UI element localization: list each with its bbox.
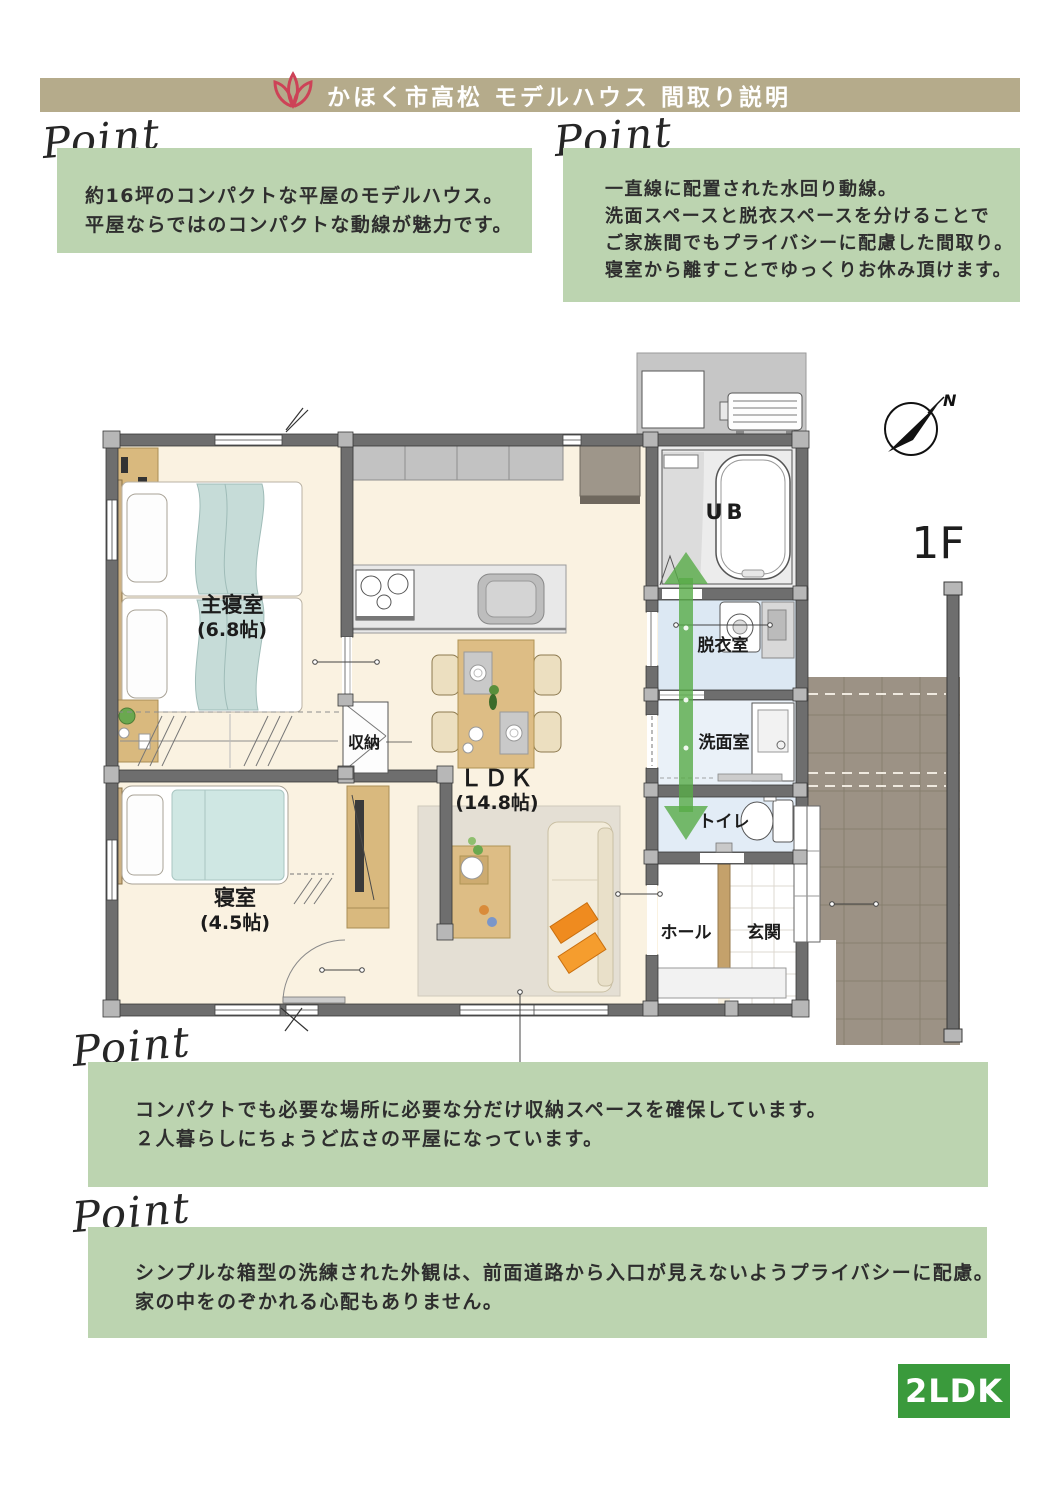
room-label-entrance: 玄関: [747, 922, 781, 943]
room-label-storage: 収納: [348, 733, 380, 752]
sink-icon: [478, 574, 544, 624]
compass-north-label: N: [943, 391, 957, 410]
entrance-approach: [806, 940, 836, 1045]
badge-2ldk: 2LDK: [898, 1364, 1010, 1418]
point-line: 平屋ならではのコンパクトな動線が魅力です。: [85, 211, 532, 240]
point-box-2: 一直線に配置された水回り動線。 洗面スペースと脱衣スペースを分けることで ご家族…: [563, 148, 1020, 302]
vanity-icon: [752, 703, 794, 781]
point-line: ２人暮らしにちょうど広さの平屋になっています。: [135, 1125, 988, 1154]
porch-tiles: [806, 677, 960, 1045]
single-bed: [112, 786, 288, 884]
room-label-ldk: ＬＤＫ: [460, 766, 535, 792]
point-box-3: コンパクトでも必要な場所に必要な分だけ収納スペースを確保しています。 ２人暮らし…: [88, 1062, 988, 1187]
room-label-dressing: 脱衣室: [698, 635, 749, 656]
room-label-hall: ホール: [661, 923, 712, 943]
room-label-washroom: 洗面室: [699, 732, 750, 753]
point-box-4: シンプルな箱型の洗練された外観は、前面道路から入口が見えないようプライバシーに配…: [88, 1227, 987, 1338]
point-line: コンパクトでも必要な場所に必要な分だけ収納スペースを確保しています。: [135, 1096, 988, 1125]
tv-board: [347, 786, 389, 928]
point-line: 約16坪のコンパクトな平屋のモデルハウス。: [85, 182, 532, 211]
fence-wall: [944, 582, 962, 1042]
hall-entrance-divider: [718, 864, 730, 968]
outdoor-unit-icon: [720, 393, 802, 434]
shoe-cabinet: [656, 968, 786, 998]
compass-icon: N: [885, 391, 957, 455]
sofa: [548, 822, 613, 992]
refrigerator: [580, 440, 640, 504]
point-line: ご家族間でもプライバシーに配慮した間取り。: [605, 230, 1020, 257]
point-line: 家の中をのぞかれる心配もありません。: [135, 1288, 987, 1317]
room-size-ldk: (14.8帖): [455, 791, 538, 814]
floor-level-label: 1F: [911, 518, 964, 569]
point-line: シンプルな箱型の洗練された外観は、前面道路から入口が見えないようプライバシーに配…: [135, 1259, 987, 1288]
room-size-bedroom: (4.5帖): [200, 911, 270, 934]
point-line: 寝室から離すことでゆっくりお休み頂けます。: [605, 257, 1020, 284]
room-label-toilet: トイレ: [699, 812, 750, 832]
point-box-1: 約16坪のコンパクトな平屋のモデルハウス。 平屋ならではのコンパクトな動線が魅力…: [57, 148, 532, 253]
room-size-master-bedroom: (6.8帖): [197, 618, 267, 641]
header-bar: かほく市高松 モデルハウス 間取り説明: [40, 78, 1020, 112]
entrance-door: [794, 806, 820, 942]
kitchen-counter: [350, 565, 566, 633]
header-title: かほく市高松 モデルハウス 間取り説明: [327, 78, 791, 112]
point-line: 洗面スペースと脱衣スペースを分けることで: [605, 203, 1020, 230]
flower-icon: [269, 68, 317, 114]
room-label-master-bedroom: 主寝室: [201, 593, 264, 617]
room-label-ub: UB: [705, 500, 746, 524]
flyer-page: かほく市高松 モデルハウス 間取り説明 Point 約16坪のコンパクトな平屋の…: [0, 0, 1060, 1500]
point-line: 一直線に配置された水回り動線。: [605, 176, 1020, 203]
room-label-bedroom: 寝室: [214, 886, 256, 910]
floorplan: 主寝室 (6.8帖) 寝室 (4.5帖) ＬＤＫ (14.8帖) 収納 UB 脱…: [0, 335, 1060, 1070]
stove-icon: [356, 570, 414, 620]
bedside-desk: [112, 700, 158, 762]
equipment-pad: [637, 353, 806, 434]
